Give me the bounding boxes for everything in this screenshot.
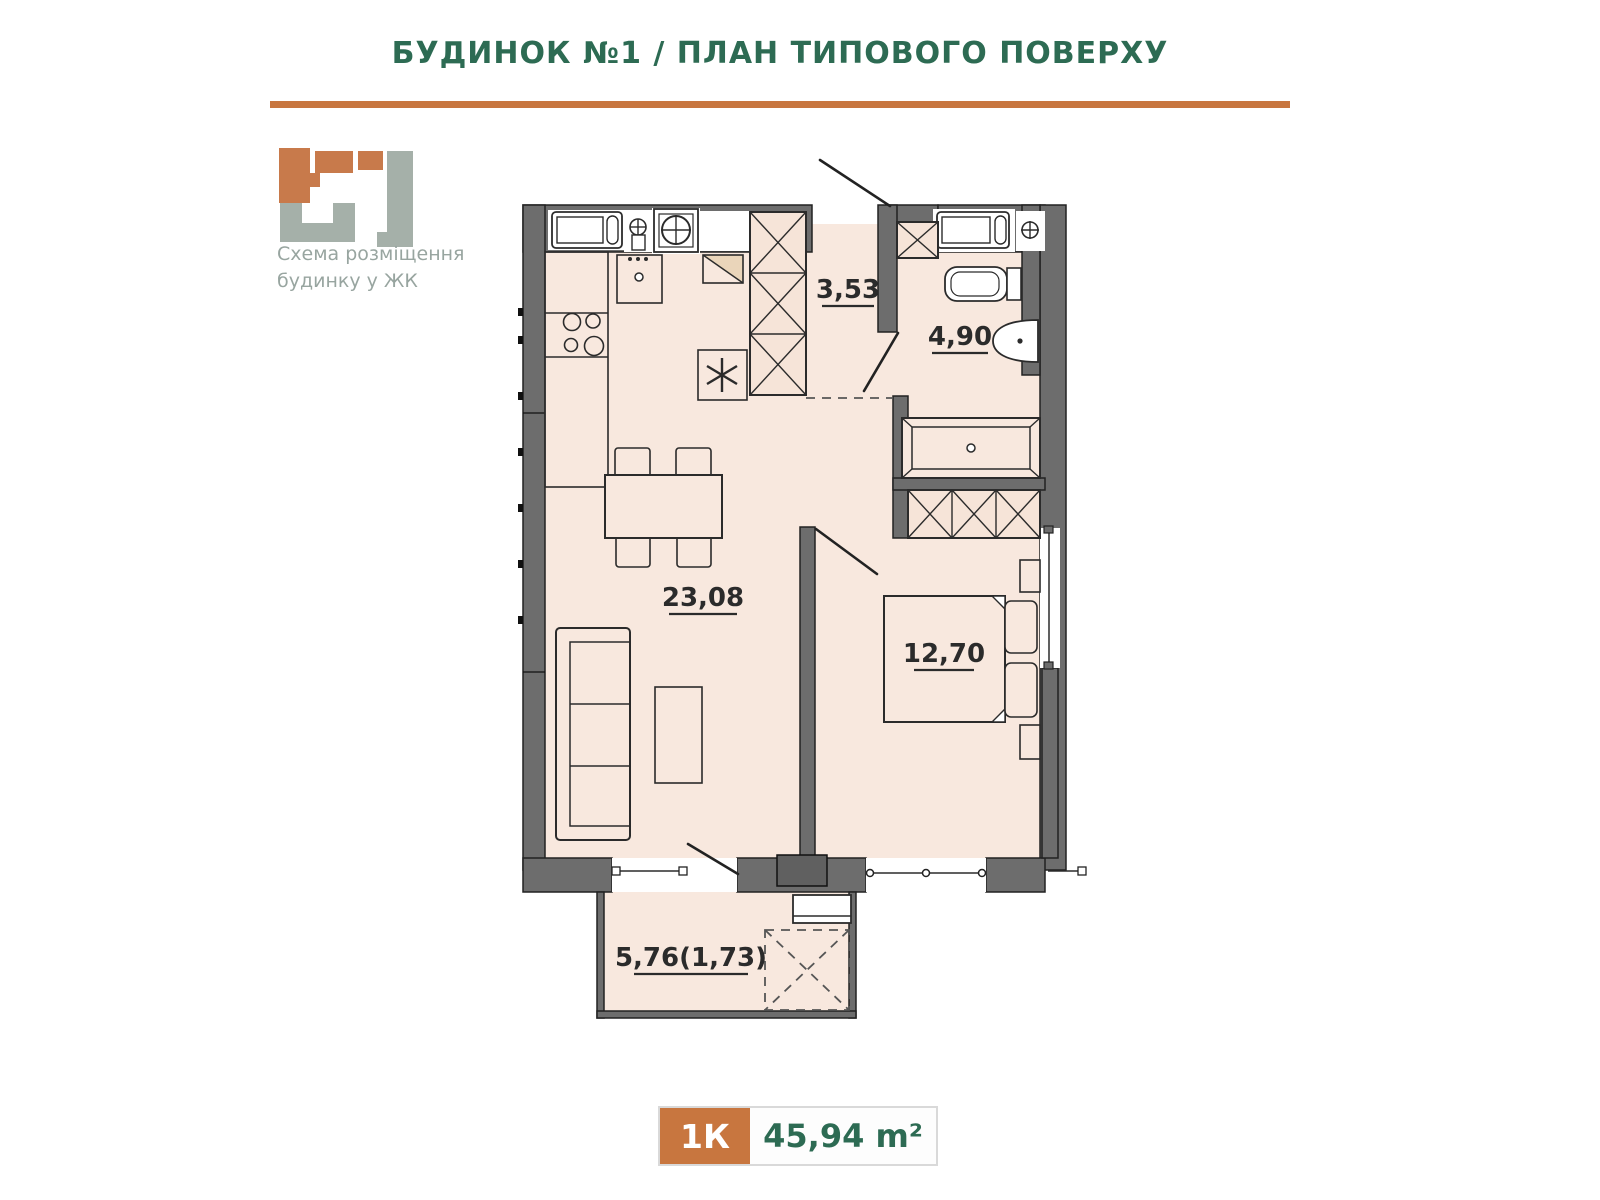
accent-divider [270,101,1290,108]
gas-valve-icon [630,219,646,250]
room-label-living-kitchen: 23,08 [662,583,744,613]
ac-unit-icon [793,895,851,923]
room-label-hallway: 3,53 [816,275,880,305]
page: БУДИНОК №1 / ПЛАН ТИПОВОГО ПОВЕРХУ Схема… [0,0,1600,1200]
fridge-spot-icon [698,350,747,400]
logo-caption-line2: будинку у ЖК [277,270,418,292]
bathroom-closet-icon [897,222,938,258]
logo-orange-blocks [279,148,383,203]
sofa-icon [556,628,630,840]
room-label-bedroom: 12,70 [903,639,985,669]
kitchen-sink-icon [617,255,662,303]
logo-caption-line1: Схема розміщення [277,243,464,265]
hallway-wardrobe-icon [750,212,806,395]
floor-plan: 23,08 3,53 4,90 12,70 5,76(1,73) [508,140,1088,1030]
appliance-kitchen-washer-icon [552,212,622,248]
vent-hob-icon [654,209,698,252]
rooms-count-badge: 1К [660,1108,750,1164]
toilet-icon [945,267,1021,301]
page-title: БУДИНОК №1 / ПЛАН ТИПОВОГО ПОВЕРХУ [270,36,1290,71]
bathtub-icon [902,418,1040,478]
total-area-value: 45,94 m² [750,1108,936,1164]
coffee-table-icon [655,687,702,783]
room-label-balcony: 5,76(1,73) [615,943,767,973]
room-label-bathroom: 4,90 [928,322,992,352]
appliance-bath-washer-icon [937,212,1009,248]
apartment-summary-badge: 1К 45,94 m² [658,1106,938,1166]
entry-door-leaf [820,160,890,206]
bedroom-wardrobe-icon [908,490,1040,538]
